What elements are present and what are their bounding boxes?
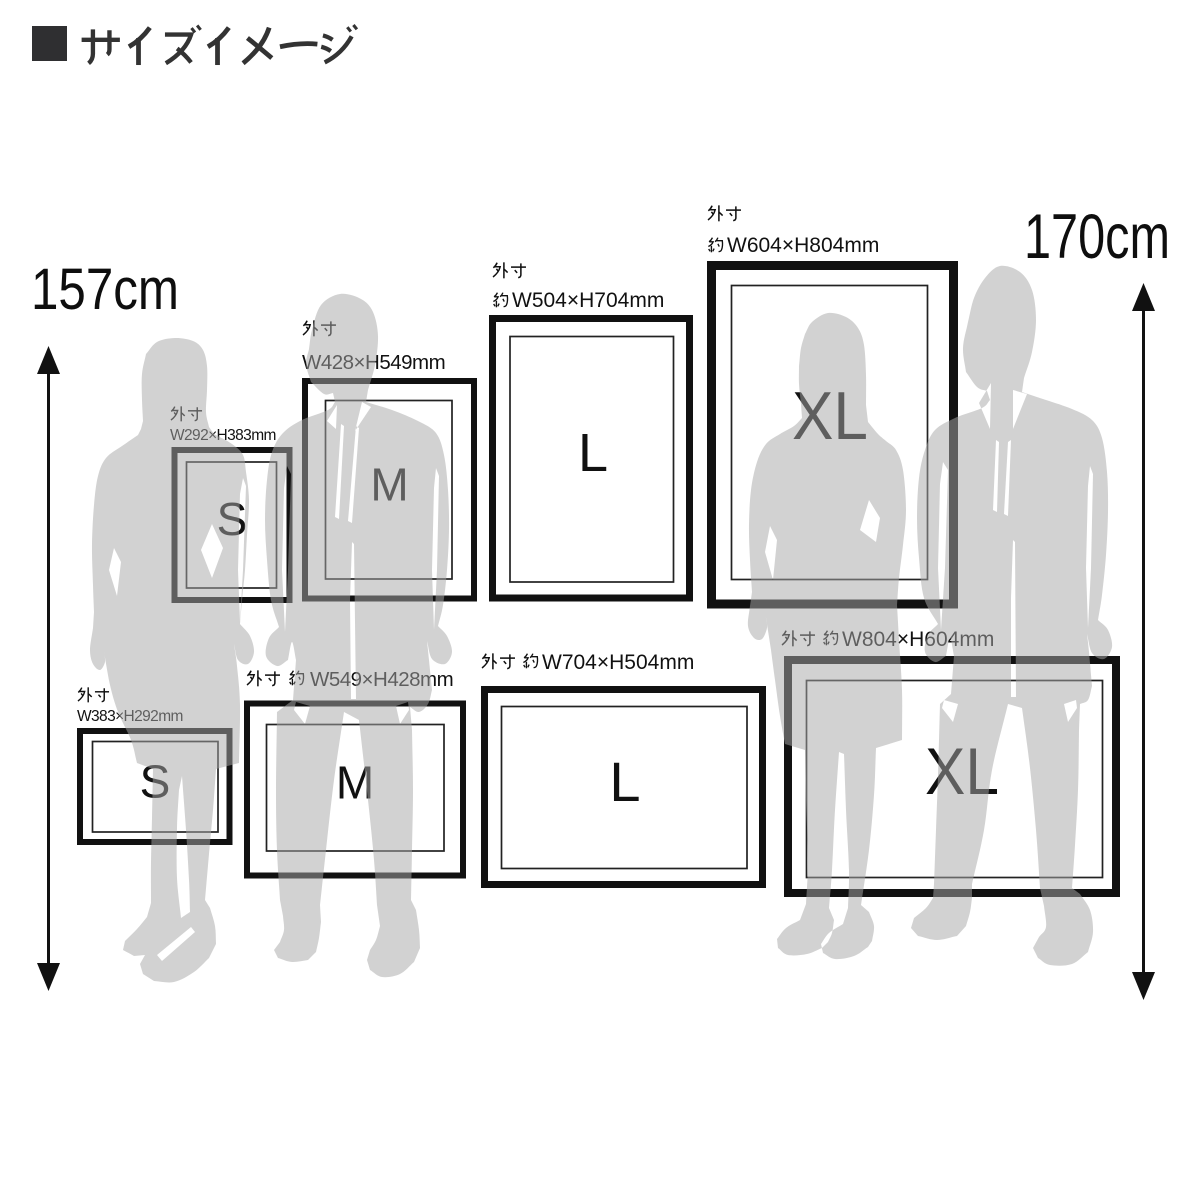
svg-text:W704×H504mm: W704×H504mm bbox=[542, 651, 694, 674]
svg-text:W604×H804mm: W604×H804mm bbox=[727, 234, 879, 257]
svg-text:170cm: 170cm bbox=[1024, 202, 1170, 272]
svg-text:157cm: 157cm bbox=[31, 257, 179, 322]
svg-text:L: L bbox=[578, 423, 608, 483]
svg-text:W504×H704mm: W504×H704mm bbox=[512, 289, 664, 312]
svg-text:L: L bbox=[609, 750, 640, 813]
